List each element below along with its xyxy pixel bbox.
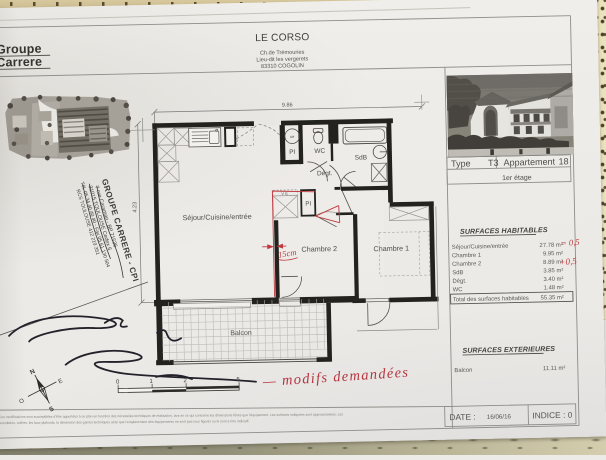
svg-text:+0,5: +0,5	[559, 256, 578, 268]
svg-text:O: O	[19, 398, 26, 406]
svg-text:WC: WC	[453, 287, 464, 293]
svg-text:Balcon: Balcon	[454, 368, 472, 374]
svg-text:3.40 m²: 3.40 m²	[543, 277, 563, 283]
svg-text:9.86: 9.86	[282, 102, 293, 108]
svg-text:= 0,5: = 0,5	[561, 237, 580, 249]
svg-text:WC: WC	[314, 148, 325, 155]
svg-text:18: 18	[558, 156, 568, 166]
svg-text:Chambre 2: Chambre 2	[301, 244, 337, 254]
svg-text:E: E	[58, 378, 64, 385]
svg-text:4.23: 4.23	[132, 202, 138, 213]
svg-text:Séjour/Cuisine/entrée: Séjour/Cuisine/entrée	[182, 212, 251, 222]
svg-text:3.85 m²: 3.85 m²	[543, 268, 563, 274]
svg-text:11.11 m²: 11.11 m²	[543, 366, 566, 372]
svg-text:2: 2	[183, 378, 187, 384]
svg-text:Dégt.: Dégt.	[317, 170, 333, 177]
svg-text:retombées, coffres, les faux-p: retombées, coffres, les faux-plafonds, l…	[0, 419, 249, 425]
svg-text:PI: PI	[289, 149, 295, 156]
svg-text:Dégt.: Dégt.	[452, 279, 467, 285]
svg-text:Séjour/Cuisine/entrée: Séjour/Cuisine/entrée	[452, 244, 509, 251]
svg-text:Appartement: Appartement	[503, 157, 555, 168]
svg-text:83310 COGOLIN: 83310 COGOLIN	[261, 63, 304, 70]
svg-text:DATE :: DATE :	[449, 412, 476, 423]
svg-text:Type: Type	[451, 158, 471, 168]
svg-text:1er étage: 1er étage	[502, 175, 532, 183]
svg-text:Chambre 2: Chambre 2	[452, 261, 481, 268]
svg-text:0: 0	[116, 380, 120, 386]
svg-text:1.48 m²: 1.48 m²	[544, 285, 564, 291]
svg-text:Chambre 1: Chambre 1	[373, 243, 409, 253]
svg-text:16/06/16: 16/06/16	[487, 413, 512, 421]
svg-text:SdB: SdB	[355, 154, 367, 161]
svg-text:INDICE :: INDICE :	[532, 410, 565, 421]
svg-text:T3: T3	[488, 158, 499, 168]
svg-text:LE CORSO: LE CORSO	[255, 32, 309, 44]
svg-text:— modifs demandées: — modifs demandées	[261, 365, 409, 390]
svg-text:27.78 m²: 27.78 m²	[539, 243, 562, 249]
svg-text:Balcon: Balcon	[230, 330, 252, 337]
svg-text:1: 1	[149, 379, 153, 385]
svg-text:Carrere: Carrere	[0, 55, 42, 70]
svg-text:0: 0	[568, 411, 573, 420]
svg-text:PI: PI	[305, 201, 311, 208]
svg-text:Chambre 1: Chambre 1	[452, 253, 481, 260]
svg-text:Ch.de Trémouries: Ch.de Trémouries	[260, 50, 305, 57]
svg-text:N: N	[29, 368, 37, 377]
svg-text:SdB: SdB	[452, 270, 463, 276]
svg-text:55.35 m²: 55.35 m²	[541, 295, 564, 301]
